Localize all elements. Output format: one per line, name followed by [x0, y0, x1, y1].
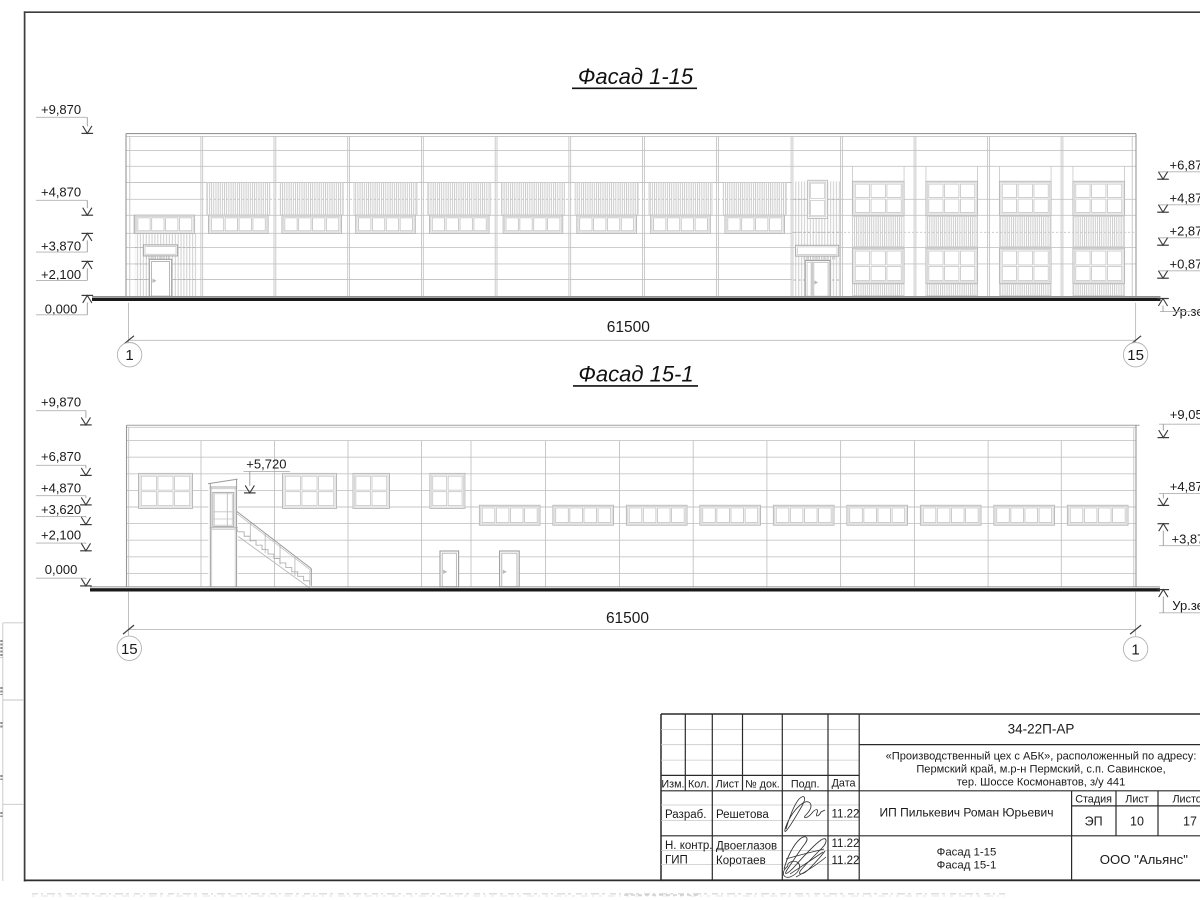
svg-text:Фасад 1-15: Фасад 1-15 — [578, 64, 694, 89]
svg-text:+4,870: +4,870 — [1170, 479, 1200, 494]
svg-text:ИП Пилькевич Роман Юрьевич: ИП Пилькевич Роман Юрьевич — [880, 806, 1054, 820]
svg-text:+4,870: +4,870 — [41, 185, 81, 200]
svg-text:+6,870: +6,870 — [41, 449, 81, 464]
svg-text:+0,870: +0,870 — [1170, 256, 1200, 271]
svg-text:Лист: Лист — [1125, 794, 1149, 806]
svg-text:11.22: 11.22 — [832, 855, 860, 867]
svg-text:Фасад 15-1: Фасад 15-1 — [578, 362, 693, 387]
svg-text:10: 10 — [1130, 815, 1144, 829]
svg-text:11.22: 11.22 — [832, 809, 860, 821]
svg-text:0,000: 0,000 — [45, 562, 78, 577]
svg-text:+2,100: +2,100 — [41, 267, 81, 282]
svg-text:«Производственный цех с АБК»,: «Производственный цех с АБК», расположен… — [886, 751, 1197, 763]
svg-text:Н. контр.: Н. контр. — [665, 840, 712, 852]
svg-text:15: 15 — [121, 641, 138, 658]
svg-text:Двоеглазов: Двоеглазов — [716, 841, 777, 853]
svg-text:Решетова: Решетова — [716, 809, 769, 821]
svg-text:ООО "Альянс": ООО "Альянс" — [1100, 852, 1188, 867]
svg-text:Лист: Лист — [716, 778, 740, 790]
svg-text:ГИП: ГИП — [665, 855, 688, 867]
svg-text:ЭП: ЭП — [1085, 815, 1103, 829]
svg-text:Листов: Листов — [1172, 794, 1200, 806]
svg-text:Ур.земли: Ур.земли — [1172, 598, 1200, 613]
svg-text:+9,050: +9,050 — [1170, 407, 1200, 422]
svg-text:11.22: 11.22 — [832, 838, 860, 850]
svg-text:+3,620: +3,620 — [41, 502, 81, 517]
svg-text:+3,870: +3,870 — [1172, 531, 1200, 546]
svg-text:Дата: Дата — [832, 777, 856, 789]
svg-text:17: 17 — [1183, 815, 1197, 829]
svg-text:Пермский край, м.р-н Пермский,: Пермский край, м.р-н Пермский, с.п. Сави… — [916, 764, 1165, 776]
svg-text:Фасад 1-15: Фасад 1-15 — [937, 846, 997, 858]
svg-text:Стадия: Стадия — [1075, 794, 1112, 806]
svg-text:+3,870: +3,870 — [41, 239, 81, 254]
svg-text:Фасад 15-1: Фасад 15-1 — [937, 859, 997, 871]
svg-text:15: 15 — [1127, 347, 1144, 364]
svg-text:+4,870: +4,870 — [41, 481, 81, 496]
svg-text:№ док.: № док. — [745, 778, 780, 790]
svg-text:61500: 61500 — [607, 319, 650, 336]
svg-text:тер. Шоссе Космонавтов, з/у 44: тер. Шоссе Космонавтов, з/у 441 — [957, 777, 1126, 789]
svg-text:1: 1 — [1131, 641, 1139, 658]
svg-text:Подп.: Подп. — [791, 778, 820, 790]
svg-text:+4,870: +4,870 — [1170, 190, 1200, 205]
svg-text:61500: 61500 — [606, 610, 649, 627]
svg-text:Разраб.: Разраб. — [665, 809, 706, 821]
svg-text:Кол.: Кол. — [688, 778, 709, 790]
svg-text:34-22П-АР: 34-22П-АР — [1008, 722, 1075, 737]
svg-text:Коротаев: Коротаев — [716, 855, 766, 867]
svg-text:+5,720: +5,720 — [246, 456, 286, 471]
svg-text:+9,870: +9,870 — [41, 394, 81, 409]
svg-text:+2,870: +2,870 — [1170, 223, 1200, 238]
svg-text:+2,100: +2,100 — [41, 527, 81, 542]
svg-text:+9,870: +9,870 — [41, 102, 81, 117]
svg-text:1: 1 — [125, 347, 133, 364]
svg-text:0,000: 0,000 — [45, 301, 78, 316]
svg-text:Изм.: Изм. — [661, 778, 684, 790]
svg-text:+6,870: +6,870 — [1170, 157, 1200, 172]
